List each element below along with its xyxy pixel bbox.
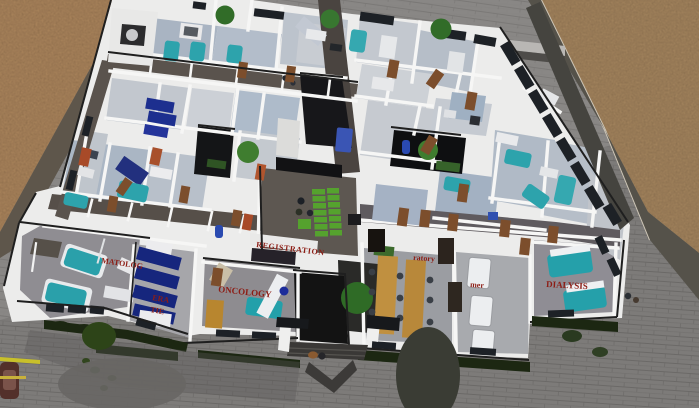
svg-text:ratory: ratory <box>413 253 435 263</box>
svg-text:mer: mer <box>470 280 485 290</box>
